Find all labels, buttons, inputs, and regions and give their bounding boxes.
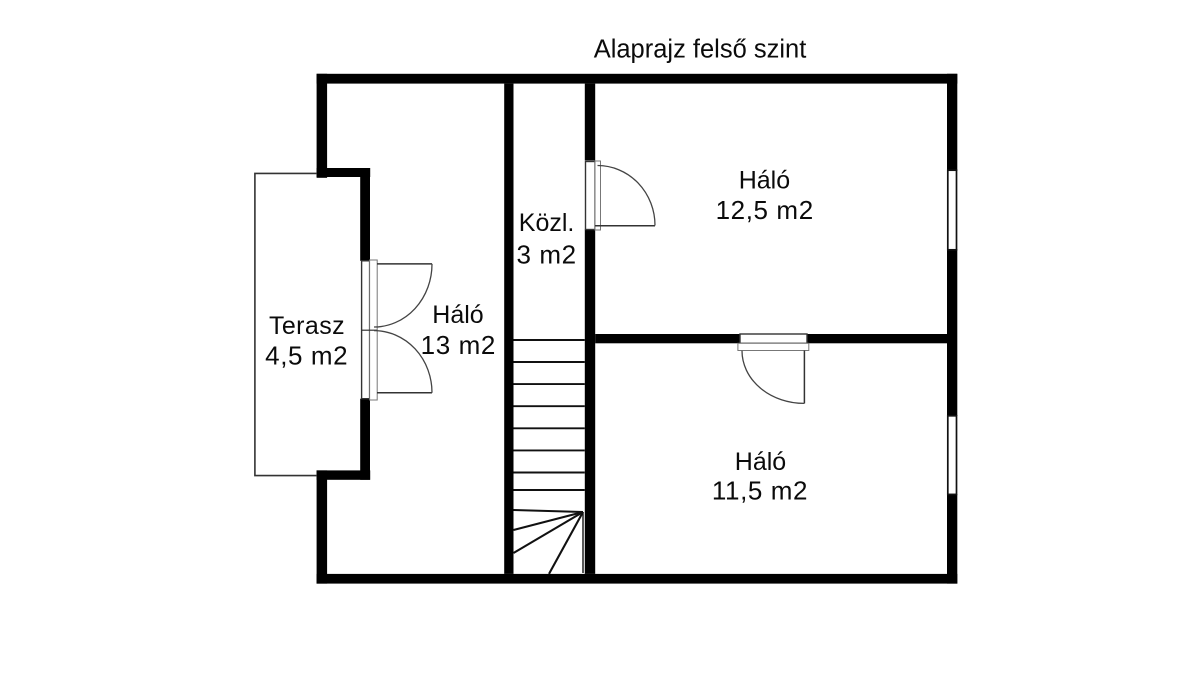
svg-text:Közl.: Közl. [519, 209, 575, 237]
svg-text:Háló: Háló [739, 167, 790, 195]
svg-text:3 m2: 3 m2 [516, 239, 576, 269]
svg-text:11,5 m2: 11,5 m2 [712, 476, 808, 506]
svg-text:Háló: Háló [432, 301, 483, 329]
svg-text:12,5 m2: 12,5 m2 [716, 195, 814, 225]
svg-text:13 m2: 13 m2 [421, 330, 496, 360]
svg-text:Alaprajz felső szint: Alaprajz felső szint [594, 36, 807, 64]
svg-text:Terasz: Terasz [269, 312, 345, 340]
svg-text:4,5 m2: 4,5 m2 [265, 340, 348, 370]
svg-text:Háló: Háló [735, 448, 786, 476]
